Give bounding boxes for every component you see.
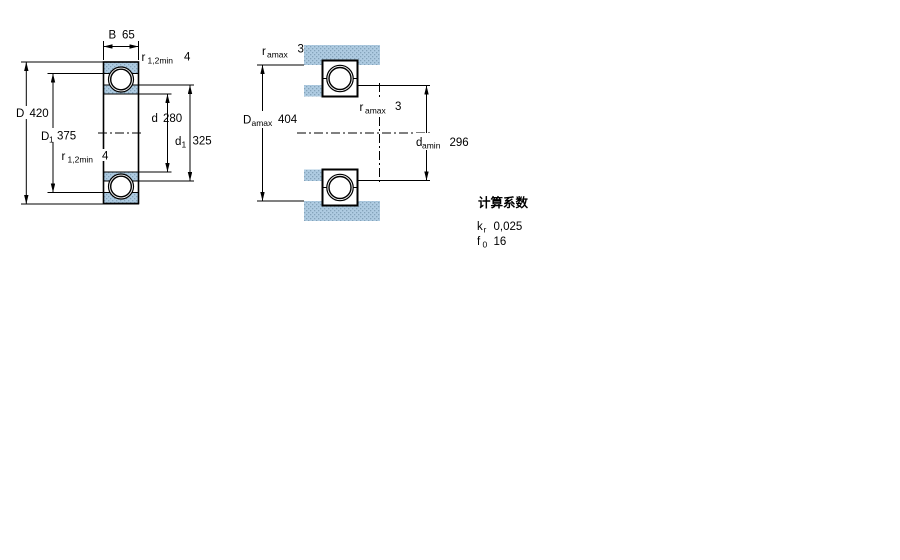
bearing-dimension-drawing: B 65 r 1,2min 4 D 420 D 1 375 r 1,2min 4… (0, 0, 900, 560)
ball-top (111, 69, 132, 90)
shaft-shoulder-top-section (304, 85, 323, 97)
canvas-background (0, 0, 900, 560)
calculation-factors-title: 计算系数 (478, 195, 529, 210)
shaft-shoulder-bottom-section (304, 170, 323, 182)
ball-bottom (111, 176, 132, 197)
dim-label-D: D 420 (16, 108, 49, 120)
ball-bottom-right (329, 177, 351, 199)
dim-label-B: B 65 (109, 30, 135, 42)
ball-top-right (329, 68, 351, 90)
dim-label-d: d 280 (152, 113, 183, 125)
